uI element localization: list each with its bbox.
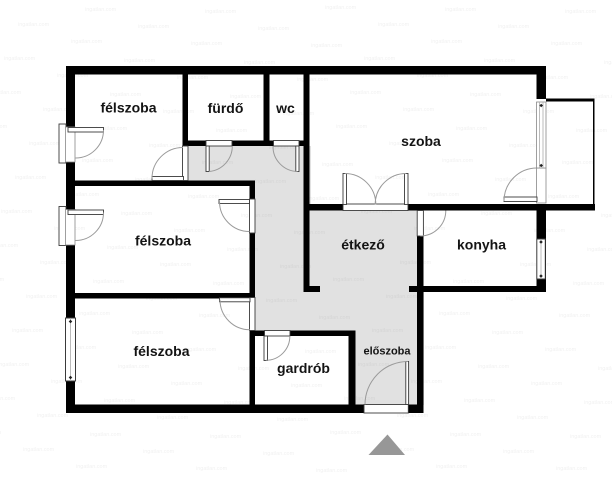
svg-text:ingatlan.com: ingatlan.com bbox=[18, 22, 50, 28]
svg-text:ingatlan.com: ingatlan.com bbox=[428, 192, 460, 198]
svg-text:ingatlan.com: ingatlan.com bbox=[1, 209, 33, 215]
svg-text:ingatlan.com: ingatlan.com bbox=[364, 56, 396, 62]
svg-text:ingatlan.com: ingatlan.com bbox=[517, 415, 549, 421]
svg-text:ingatlan.com: ingatlan.com bbox=[121, 211, 153, 217]
svg-text:ingatlan.com: ingatlan.com bbox=[124, 58, 156, 64]
svg-text:ingatlan.com: ingatlan.com bbox=[185, 347, 217, 353]
svg-text:ingatlan.com: ingatlan.com bbox=[319, 315, 351, 321]
svg-text:ingatlan.com: ingatlan.com bbox=[509, 143, 541, 149]
svg-text:ingatlan.com: ingatlan.com bbox=[82, 158, 114, 164]
svg-text:ingatlan.com: ingatlan.com bbox=[191, 41, 223, 47]
svg-text:ingatlan.com: ingatlan.com bbox=[450, 432, 482, 438]
svg-text:ingatlan.com: ingatlan.com bbox=[29, 141, 61, 147]
svg-text:étkező: étkező bbox=[341, 237, 385, 253]
svg-text:ingatlan.com: ingatlan.com bbox=[163, 109, 195, 115]
svg-text:ingatlan.com: ingatlan.com bbox=[308, 196, 340, 202]
svg-text:ingatlan.com: ingatlan.com bbox=[291, 383, 323, 389]
svg-text:félszoba: félszoba bbox=[135, 233, 191, 249]
svg-text:ingatlan.com: ingatlan.com bbox=[330, 430, 362, 436]
svg-text:ingatlan.com: ingatlan.com bbox=[358, 362, 390, 368]
svg-text:ingatlan.com: ingatlan.com bbox=[107, 245, 139, 251]
svg-text:ingatlan.com: ingatlan.com bbox=[350, 90, 382, 96]
svg-text:ingatlan.com: ingatlan.com bbox=[456, 126, 488, 132]
svg-text:ingatlan.com: ingatlan.com bbox=[143, 449, 175, 455]
svg-text:ingatlan.com: ingatlan.com bbox=[492, 330, 524, 336]
svg-text:ingatlan.com: ingatlan.com bbox=[325, 5, 357, 11]
svg-text:ingatlan.com: ingatlan.com bbox=[118, 364, 150, 370]
svg-text:ingatlan.com: ingatlan.com bbox=[196, 466, 228, 472]
svg-text:ingatlan.com: ingatlan.com bbox=[573, 281, 605, 287]
svg-text:ingatlan.com: ingatlan.com bbox=[0, 90, 22, 96]
svg-text:ingatlan.com: ingatlan.com bbox=[431, 39, 463, 45]
svg-text:ingatlan.com: ingatlan.com bbox=[322, 162, 354, 168]
svg-text:ingatlan.com: ingatlan.com bbox=[545, 347, 577, 353]
svg-text:ingatlan.com: ingatlan.com bbox=[205, 9, 237, 15]
svg-text:ingatlan.com: ingatlan.com bbox=[138, 24, 170, 30]
svg-text:előszoba: előszoba bbox=[363, 346, 411, 358]
svg-text:ingatlan.com: ingatlan.com bbox=[258, 26, 290, 32]
svg-text:ingatlan.com: ingatlan.com bbox=[104, 398, 136, 404]
svg-text:ingatlan.com: ingatlan.com bbox=[559, 313, 591, 319]
svg-text:ingatlan.com: ingatlan.com bbox=[425, 345, 457, 351]
svg-text:ingatlan.com: ingatlan.com bbox=[548, 194, 580, 200]
svg-text:ingatlan.com: ingatlan.com bbox=[79, 311, 111, 317]
svg-text:ingatlan.com: ingatlan.com bbox=[587, 247, 612, 253]
svg-text:ingatlan.com: ingatlan.com bbox=[37, 413, 69, 419]
svg-text:ingatlan.com: ingatlan.com bbox=[93, 279, 125, 285]
svg-text:ingatlan.com: ingatlan.com bbox=[297, 77, 329, 83]
svg-text:gardrób: gardrób bbox=[277, 360, 330, 376]
svg-text:ingatlan.com: ingatlan.com bbox=[378, 22, 410, 28]
svg-text:félszoba: félszoba bbox=[100, 100, 156, 116]
svg-text:ingatlan.com: ingatlan.com bbox=[333, 277, 365, 283]
svg-text:ingatlan.com: ingatlan.com bbox=[255, 179, 287, 185]
svg-text:ingatlan.com: ingatlan.com bbox=[316, 468, 348, 474]
svg-text:ingatlan.com: ingatlan.com bbox=[403, 107, 435, 113]
svg-text:wc: wc bbox=[275, 100, 295, 116]
svg-text:ingatlan.com: ingatlan.com bbox=[26, 294, 58, 300]
svg-text:ingatlan.com: ingatlan.com bbox=[372, 328, 404, 334]
svg-text:ingatlan.com: ingatlan.com bbox=[266, 298, 298, 304]
svg-text:ingatlan.com: ingatlan.com bbox=[0, 396, 16, 402]
svg-text:ingatlan.com: ingatlan.com bbox=[311, 43, 343, 49]
svg-text:ingatlan.com: ingatlan.com bbox=[241, 213, 273, 219]
svg-text:ingatlan.com: ingatlan.com bbox=[171, 381, 203, 387]
svg-text:ingatlan.com: ingatlan.com bbox=[498, 24, 530, 30]
svg-text:ingatlan.com: ingatlan.com bbox=[210, 434, 242, 440]
svg-text:ingatlan.com: ingatlan.com bbox=[436, 464, 468, 470]
svg-text:ingatlan.com: ingatlan.com bbox=[442, 158, 474, 164]
svg-text:félszoba: félszoba bbox=[133, 343, 189, 359]
svg-text:ingatlan.com: ingatlan.com bbox=[110, 92, 142, 98]
svg-text:ingatlan.com: ingatlan.com bbox=[570, 434, 602, 440]
svg-text:ingatlan.com: ingatlan.com bbox=[0, 362, 30, 368]
svg-text:ingatlan.com: ingatlan.com bbox=[15, 175, 47, 181]
svg-text:ingatlan.com: ingatlan.com bbox=[0, 124, 8, 130]
svg-text:ingatlan.com: ingatlan.com bbox=[216, 128, 248, 134]
svg-text:ingatlan.com: ingatlan.com bbox=[481, 211, 513, 217]
svg-text:ingatlan.com: ingatlan.com bbox=[411, 379, 443, 385]
svg-text:konyha: konyha bbox=[457, 237, 506, 253]
svg-text:ingatlan.com: ingatlan.com bbox=[478, 364, 510, 370]
svg-text:ingatlan.com: ingatlan.com bbox=[598, 366, 612, 372]
svg-text:ingatlan.com: ingatlan.com bbox=[470, 92, 502, 98]
svg-text:ingatlan.com: ingatlan.com bbox=[584, 400, 612, 406]
svg-text:ingatlan.com: ingatlan.com bbox=[132, 330, 164, 336]
svg-text:ingatlan.com: ingatlan.com bbox=[531, 381, 563, 387]
svg-text:ingatlan.com: ingatlan.com bbox=[71, 39, 103, 45]
svg-text:ingatlan.com: ingatlan.com bbox=[495, 177, 527, 183]
svg-text:ingatlan.com: ingatlan.com bbox=[177, 75, 209, 81]
svg-text:ingatlan.com: ingatlan.com bbox=[90, 432, 122, 438]
svg-text:ingatlan.com: ingatlan.com bbox=[562, 160, 594, 166]
svg-text:ingatlan.com: ingatlan.com bbox=[551, 41, 583, 47]
svg-text:ingatlan.com: ingatlan.com bbox=[520, 262, 552, 268]
svg-text:ingatlan.com: ingatlan.com bbox=[213, 281, 245, 287]
svg-text:ingatlan.com: ingatlan.com bbox=[0, 277, 5, 283]
svg-text:ingatlan.com: ingatlan.com bbox=[12, 328, 44, 334]
svg-text:ingatlan.com: ingatlan.com bbox=[23, 447, 55, 453]
svg-text:ingatlan.com: ingatlan.com bbox=[0, 243, 19, 249]
svg-text:ingatlan.com: ingatlan.com bbox=[157, 415, 189, 421]
svg-text:ingatlan.com: ingatlan.com bbox=[576, 128, 608, 134]
svg-text:ingatlan.com: ingatlan.com bbox=[305, 349, 337, 355]
svg-text:ingatlan.com: ingatlan.com bbox=[4, 56, 36, 62]
svg-text:ingatlan.com: ingatlan.com bbox=[160, 262, 192, 268]
svg-text:fürdő: fürdő bbox=[208, 100, 244, 116]
svg-text:ingatlan.com: ingatlan.com bbox=[503, 449, 535, 455]
svg-text:ingatlan.com: ingatlan.com bbox=[604, 60, 612, 66]
svg-text:ingatlan.com: ingatlan.com bbox=[397, 413, 429, 419]
svg-text:ingatlan.com: ingatlan.com bbox=[188, 194, 220, 200]
svg-text:ingatlan.com: ingatlan.com bbox=[386, 294, 418, 300]
svg-text:ingatlan.com: ingatlan.com bbox=[464, 398, 496, 404]
svg-text:ingatlan.com: ingatlan.com bbox=[85, 7, 117, 13]
svg-text:ingatlan.com: ingatlan.com bbox=[565, 9, 597, 15]
svg-text:ingatlan.com: ingatlan.com bbox=[601, 213, 612, 219]
svg-text:ingatlan.com: ingatlan.com bbox=[506, 296, 538, 302]
svg-text:ingatlan.com: ingatlan.com bbox=[484, 58, 516, 64]
svg-text:ingatlan.com: ingatlan.com bbox=[244, 60, 276, 66]
svg-text:ingatlan.com: ingatlan.com bbox=[294, 230, 326, 236]
svg-text:ingatlan.com: ingatlan.com bbox=[445, 7, 477, 13]
svg-text:ingatlan.com: ingatlan.com bbox=[439, 311, 471, 317]
svg-text:ingatlan.com: ingatlan.com bbox=[76, 464, 108, 470]
svg-text:ingatlan.com: ingatlan.com bbox=[453, 279, 485, 285]
svg-text:ingatlan.com: ingatlan.com bbox=[277, 417, 309, 423]
svg-text:ingatlan.com: ingatlan.com bbox=[400, 260, 432, 266]
svg-text:ingatlan.com: ingatlan.com bbox=[556, 466, 588, 472]
svg-text:ingatlan.com: ingatlan.com bbox=[336, 124, 368, 130]
svg-text:ingatlan.com: ingatlan.com bbox=[263, 451, 295, 457]
svg-text:szoba: szoba bbox=[401, 133, 441, 149]
